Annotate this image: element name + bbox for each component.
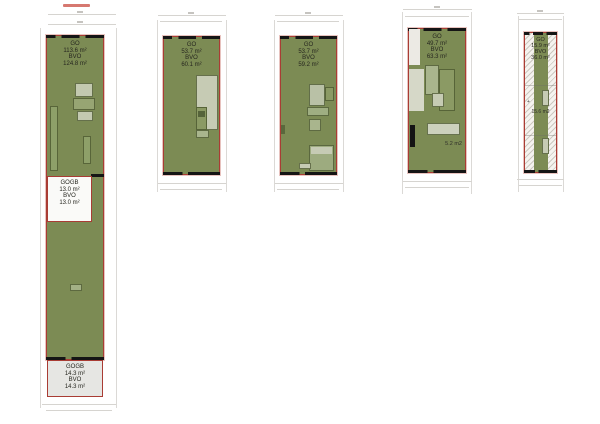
room-area-label: 5.2 m2 (445, 141, 462, 147)
floorplan-unit-5: GO 15.9 m² BVO 36.0 m² + 15.6 m2 (524, 32, 557, 173)
wall (46, 35, 104, 38)
door-leaf (410, 125, 415, 147)
dimension-number (537, 10, 543, 12)
gogb-section-1: GOGB 13.0 m² BVO 13.0 m² (47, 176, 92, 222)
bvo-value: 124.8 m² (47, 61, 103, 68)
floorplan-unit-1: GO 113.6 m² BVO 124.8 m² GOGB 13.0 m² BV… (46, 35, 104, 360)
dimension-line (275, 183, 343, 184)
fixture (198, 111, 205, 117)
dimension-line (275, 15, 343, 16)
dimension-line (471, 12, 472, 194)
dimension-number (305, 12, 311, 14)
wall (280, 36, 337, 39)
dimension-line (274, 20, 275, 192)
wall (408, 170, 466, 173)
dimension-line (402, 12, 403, 194)
dimension-line (158, 15, 226, 16)
dimension-line (403, 9, 472, 10)
shower (309, 84, 325, 106)
go-value: 113.6 m² (47, 48, 103, 55)
wall (163, 36, 220, 39)
fixture (432, 93, 444, 107)
light-zone (409, 69, 424, 111)
floorplan-unit-2: GO 53.7 m² BVO 60.1 m² (163, 36, 220, 175)
fixture (70, 284, 82, 291)
dimension-number (77, 11, 83, 13)
fixture (73, 98, 95, 110)
dimension-line (519, 185, 562, 186)
go-label: GO (47, 41, 103, 48)
dimension-number (77, 21, 83, 23)
gogb-label: GOGB 13.0 m² BVO 13.0 m² (48, 180, 91, 207)
dimension-line (160, 21, 222, 22)
dimension-line (563, 16, 564, 192)
area-label-unit-5: GO 15.9 m² BVO 36.0 m² (525, 37, 556, 62)
floorplan-unit-4: GO 49.7 m² BVO 63.3 m² 5.2 m2 (408, 28, 466, 173)
room-area-label: 15.6 m2 (525, 109, 556, 115)
survey-marker: + (527, 99, 530, 105)
dimension-line (403, 181, 472, 182)
wall-segment (91, 174, 104, 177)
area-label-unit-2: GO 53.7 m² BVO 60.1 m² (164, 42, 219, 69)
dimension-line (405, 187, 469, 188)
floorplan-unit-3: GO 53.7 m² BVO 59.2 m² (280, 36, 337, 175)
dimension-line (48, 24, 116, 25)
bvo-label: BVO (47, 54, 103, 61)
dimension-line (226, 20, 227, 192)
gogb-label: GOGB 14.3 m² BVO 14.3 m² (48, 364, 102, 391)
dimension-line (48, 14, 116, 15)
fixture (425, 65, 439, 95)
gogb-section-2: GOGB 14.3 m² BVO 14.3 m² (47, 360, 103, 397)
division-line (525, 135, 556, 136)
fixture (542, 138, 549, 154)
dimension-line (42, 404, 116, 405)
dimension-line (158, 183, 226, 184)
door-notch (281, 125, 285, 134)
counter (307, 107, 329, 116)
area-label-unit-4: GO 49.7 m² BVO 63.3 m² (409, 34, 465, 61)
dimension-line (519, 19, 562, 20)
fixture (75, 83, 93, 97)
fixture (299, 163, 311, 169)
dimension-line (277, 189, 339, 190)
kitchen-counter (427, 123, 460, 135)
area-label-unit-1: GO 113.6 m² BVO 124.8 m² (47, 41, 103, 68)
wall (163, 172, 220, 175)
division-line (525, 85, 556, 86)
wall (524, 32, 557, 35)
dimension-line (343, 20, 344, 192)
wall (280, 172, 337, 175)
fixture (309, 119, 321, 131)
fixture (77, 111, 93, 121)
dimension-line (157, 20, 158, 192)
floor-plan-sheet: GO 113.6 m² BVO 124.8 m² GOGB 13.0 m² BV… (0, 0, 600, 424)
dimension-line (517, 179, 564, 180)
dimension-number (188, 12, 194, 14)
stairs (50, 106, 58, 171)
dimension-line (46, 410, 112, 411)
pillow (311, 147, 332, 154)
area-label-unit-3: GO 53.7 m² BVO 59.2 m² (281, 42, 336, 69)
dimension-line (518, 16, 519, 192)
dimension-line (160, 189, 222, 190)
dimension-line (405, 16, 469, 17)
dimension-line (40, 28, 41, 408)
appliance (83, 136, 91, 164)
fixture (196, 130, 209, 138)
wall (524, 170, 557, 173)
fixture (325, 87, 334, 101)
dimension-number (434, 6, 440, 8)
red-annotation (63, 4, 90, 7)
dimension-line (277, 21, 339, 22)
dimension-line (517, 13, 564, 14)
fixture (542, 90, 549, 106)
dimension-line (116, 28, 117, 408)
